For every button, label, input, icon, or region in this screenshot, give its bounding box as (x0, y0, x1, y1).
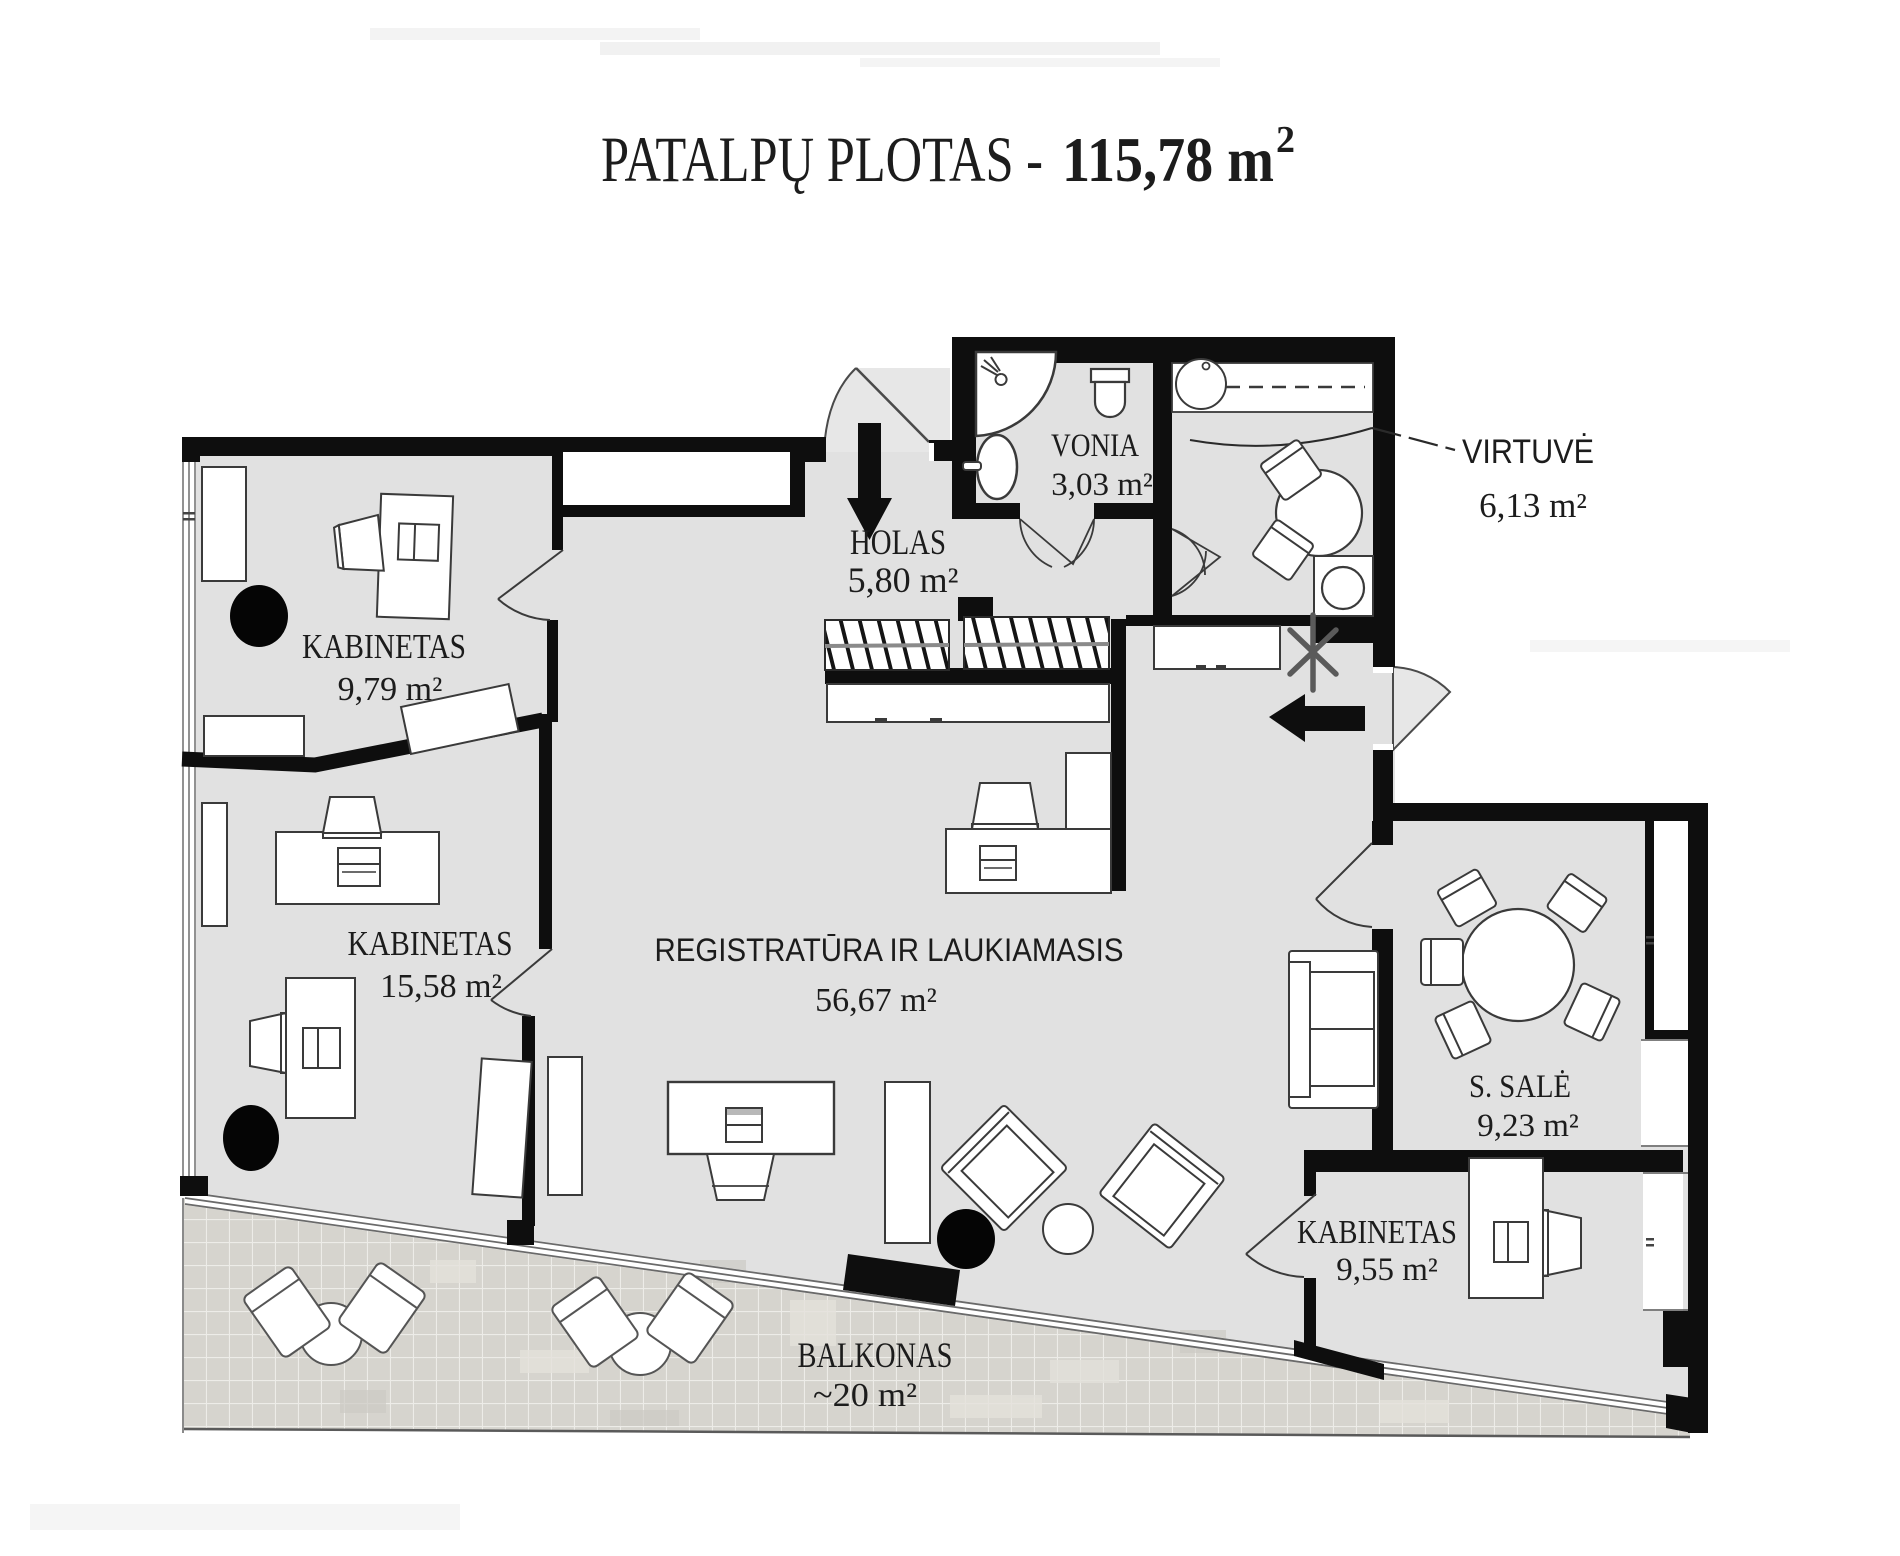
svg-text:5,80 m²: 5,80 m² (848, 560, 959, 600)
svg-text:9,23 m²: 9,23 m² (1477, 1108, 1579, 1144)
svg-text:VONIA: VONIA (1051, 428, 1139, 464)
svg-text:2: 2 (1276, 119, 1295, 161)
svg-text:115,78 m: 115,78 m (1062, 125, 1274, 195)
svg-text:56,67 m²: 56,67 m² (815, 982, 937, 1019)
svg-text:S. SALĖ: S. SALĖ (1469, 1069, 1571, 1105)
svg-text:KABINETAS: KABINETAS (302, 627, 466, 666)
svg-text:9,79 m²: 9,79 m² (338, 671, 443, 708)
svg-text:KABINETAS: KABINETAS (348, 924, 513, 963)
svg-text:9,55 m²: 9,55 m² (1336, 1252, 1438, 1288)
svg-text:REGISTRATŪRA IR LAUKIAMASIS: REGISTRATŪRA IR LAUKIAMASIS (655, 932, 1124, 968)
svg-text:VIRTUVĖ: VIRTUVĖ (1462, 433, 1594, 471)
svg-text:6,13 m²: 6,13 m² (1479, 486, 1587, 525)
svg-text:PATALPŲ PLOTAS -: PATALPŲ PLOTAS - (601, 124, 1043, 196)
svg-text:3,03 m²: 3,03 m² (1051, 467, 1153, 503)
svg-text:BALKONAS: BALKONAS (798, 1335, 953, 1375)
svg-text:~20 m²: ~20 m² (813, 1377, 917, 1414)
svg-text:KABINETAS: KABINETAS (1297, 1214, 1457, 1251)
svg-text:15,58 m²: 15,58 m² (380, 968, 502, 1005)
svg-text:HOLAS: HOLAS (850, 522, 946, 562)
